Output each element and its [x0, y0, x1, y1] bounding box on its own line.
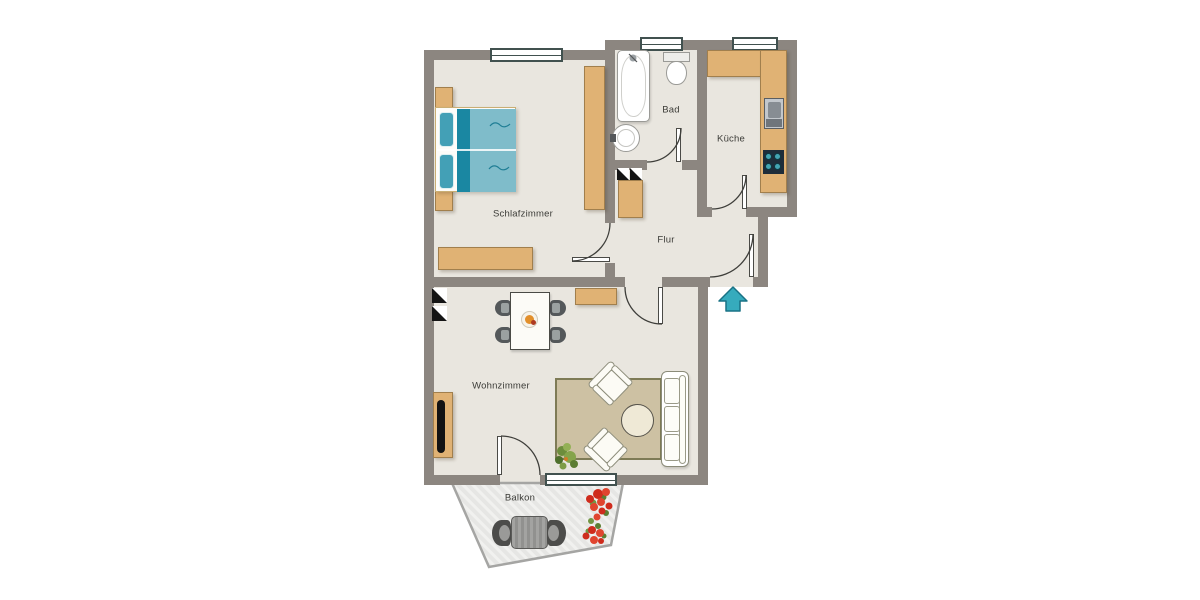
dining-chair	[495, 300, 511, 316]
shaft-marker-icon	[630, 168, 642, 180]
room-label-balkon: Balkon	[505, 493, 535, 504]
washbasin	[612, 124, 640, 152]
door-leaf	[742, 175, 747, 209]
nightstand	[435, 87, 453, 109]
window	[545, 473, 617, 486]
nightstand	[435, 189, 453, 211]
window	[490, 48, 563, 62]
room-label-schlafzimmer: Schlafzimmer	[493, 209, 553, 220]
room-label-wohnzimmer: Wohnzimmer	[472, 381, 530, 392]
balcony-chair	[492, 520, 511, 546]
shaft-marker-icon	[432, 288, 447, 303]
dresser	[438, 247, 533, 270]
balcony-flowers-icon	[583, 488, 613, 544]
pillow	[439, 112, 454, 147]
room-label-kueche: Küche	[717, 134, 745, 145]
wall-segment	[746, 207, 797, 217]
tv	[437, 400, 445, 453]
sofa	[661, 371, 689, 467]
wall-segment	[424, 277, 625, 287]
kitchen-counter-top	[707, 50, 763, 77]
double-bed	[435, 107, 516, 192]
room-label-bad: Bad	[662, 105, 680, 116]
door-leaf	[572, 257, 610, 262]
window	[640, 37, 683, 51]
wall-segment	[697, 40, 707, 217]
pillow	[439, 154, 454, 189]
balcony-chair	[547, 520, 566, 546]
dining-chair	[550, 300, 566, 316]
wall-segment	[758, 207, 768, 287]
fruit-bowl	[521, 311, 538, 328]
bathtub	[617, 50, 650, 122]
burner	[765, 163, 772, 170]
wall-segment	[697, 207, 712, 217]
wall-segment	[424, 475, 500, 485]
window	[732, 37, 778, 51]
wardrobe	[584, 66, 605, 210]
bathtub-basin	[621, 55, 646, 117]
sink-basin	[768, 102, 781, 118]
dining-chair	[495, 327, 511, 343]
shaft-marker-icon	[432, 306, 447, 321]
dining-chair	[550, 327, 566, 343]
sink-base	[766, 119, 782, 127]
room-label-flur: Flur	[657, 235, 674, 246]
wall-segment	[698, 277, 708, 485]
washbasin-bowl	[617, 129, 635, 147]
hall-cabinet	[618, 180, 643, 218]
mattress-divider	[437, 149, 516, 151]
balcony-table	[511, 516, 548, 549]
wall-segment	[605, 263, 615, 277]
kitchen-sink	[764, 98, 784, 129]
wall-segment	[682, 160, 707, 170]
wall-segment	[787, 40, 797, 217]
burner	[765, 153, 772, 160]
shaft-marker-icon	[617, 168, 629, 180]
burner	[774, 163, 781, 170]
entrance-arrow-icon	[719, 287, 747, 311]
stove	[763, 150, 784, 174]
burner	[774, 153, 781, 160]
door-leaf	[497, 436, 502, 475]
door-leaf	[749, 234, 754, 277]
door-leaf	[676, 128, 681, 162]
toilet-bowl	[666, 61, 687, 85]
floor-plan: Schlafzimmer Bad Küche Flur Wohnzimmer B…	[0, 0, 1200, 600]
wall-segment	[753, 277, 768, 287]
washbasin-tap	[610, 134, 616, 142]
coffee-table	[621, 404, 654, 437]
door-leaf	[658, 287, 663, 324]
sideboard	[575, 288, 617, 305]
